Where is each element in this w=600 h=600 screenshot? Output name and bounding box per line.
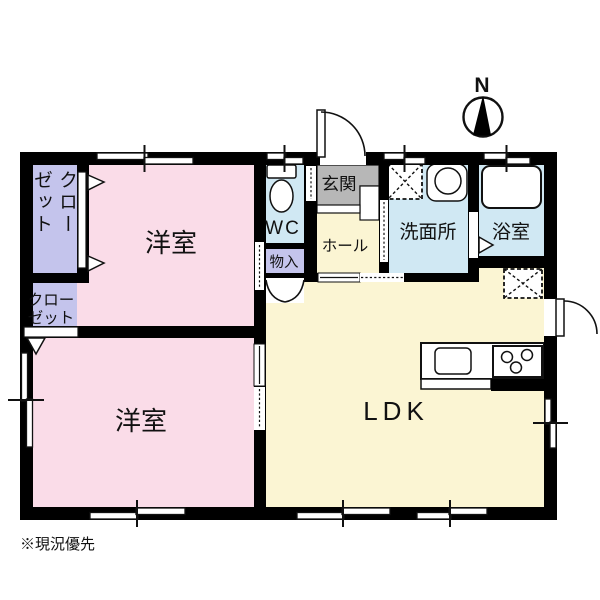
entrance-door-gap <box>320 152 366 165</box>
ldk-label: LDK <box>363 396 429 426</box>
toilet-tank <box>267 165 296 178</box>
window-pane <box>342 508 390 515</box>
window-pane <box>22 353 28 401</box>
bedroom-top-label: 洋室 <box>145 228 197 258</box>
window-pane <box>136 508 185 515</box>
bathroom-door-gap <box>469 212 478 258</box>
toilet-bowl <box>270 180 293 212</box>
compass-icon: N <box>464 74 503 137</box>
storage-door-swing-area <box>266 278 304 303</box>
window-pane <box>384 153 406 160</box>
washbasin-bowl <box>435 168 461 194</box>
entrance-door-arc <box>317 110 365 157</box>
bathtub-icon <box>482 166 541 208</box>
back-door-swing <box>564 301 597 334</box>
washroom-label: 洗面所 <box>399 221 456 243</box>
washbasin-icon <box>427 164 467 201</box>
sliding-door-bedroom-top <box>255 242 264 290</box>
window-pane <box>90 513 138 520</box>
window-pane <box>27 399 33 447</box>
kitchen-sink-icon <box>435 348 471 374</box>
closet-lower-label-line2: ゼット <box>28 309 75 327</box>
window-pane <box>284 158 303 165</box>
hall-label: ホール <box>322 238 369 255</box>
wall-kitchen-stub <box>491 379 544 391</box>
wc-label: WC <box>265 218 301 239</box>
floorplan-drawing: 洋室 洋室 LDK WC 玄関 ホール 物入 洗面所 浴室 クロー ゼット クロ… <box>0 0 600 600</box>
window-pane <box>449 508 487 515</box>
sliding-door-hall-ldk <box>318 273 404 282</box>
window-pane <box>506 158 530 165</box>
entrance-label: 玄関 <box>322 174 357 194</box>
stove-burner <box>522 350 533 361</box>
bathroom-label: 浴室 <box>492 221 530 243</box>
floorplan-page: 洋室 洋室 LDK WC 玄関 ホール 物入 洗面所 浴室 クロー ゼット クロ… <box>0 0 600 600</box>
bedroom-bottom-label: 洋室 <box>115 406 167 436</box>
wall-below-wc <box>266 243 304 249</box>
toilet-icon <box>267 165 296 212</box>
back-door-arc <box>556 299 597 336</box>
window-pane <box>484 153 508 160</box>
compass-n-label: N <box>474 74 489 97</box>
note-text: ※現況優先 <box>20 536 95 553</box>
closet-upper-label: クローゼット <box>29 170 79 252</box>
stove-burner <box>511 362 522 373</box>
entrance-step-edge <box>317 205 360 213</box>
window-pane <box>97 153 148 160</box>
window-pane <box>144 158 193 165</box>
sliding-door-wc <box>306 166 316 201</box>
window-pane <box>267 153 286 160</box>
window-pane <box>404 158 425 165</box>
wall-between-closets <box>20 273 89 283</box>
refrigerator-space-icon <box>504 269 542 298</box>
window-pane <box>545 399 551 424</box>
window-pane <box>417 513 451 520</box>
entrance-step <box>360 186 379 220</box>
closet-lower-label-line1: クロー <box>28 291 75 309</box>
back-door-leaf <box>556 299 564 336</box>
back-door-gap <box>544 299 557 336</box>
wall-below-storage <box>266 273 304 278</box>
stove-icon <box>493 346 542 377</box>
wall-below-bathroom <box>468 256 544 268</box>
closet-upper-label-box: クローゼット <box>29 170 81 270</box>
entrance-door-swing <box>321 112 365 156</box>
stove-burner <box>502 352 513 363</box>
closet-lower-door <box>24 327 78 337</box>
sliding-door-bedroom-bottom <box>254 344 265 430</box>
storage-label: 物入 <box>270 254 299 271</box>
window-pane <box>550 422 556 448</box>
kitchen-counter-edge <box>421 379 491 389</box>
sliding-door-panel <box>255 242 264 290</box>
window-pane <box>297 513 344 520</box>
sliding-door-panel <box>380 200 388 262</box>
sliding-door-washroom <box>380 200 388 262</box>
entrance-door-leaf <box>317 110 325 157</box>
